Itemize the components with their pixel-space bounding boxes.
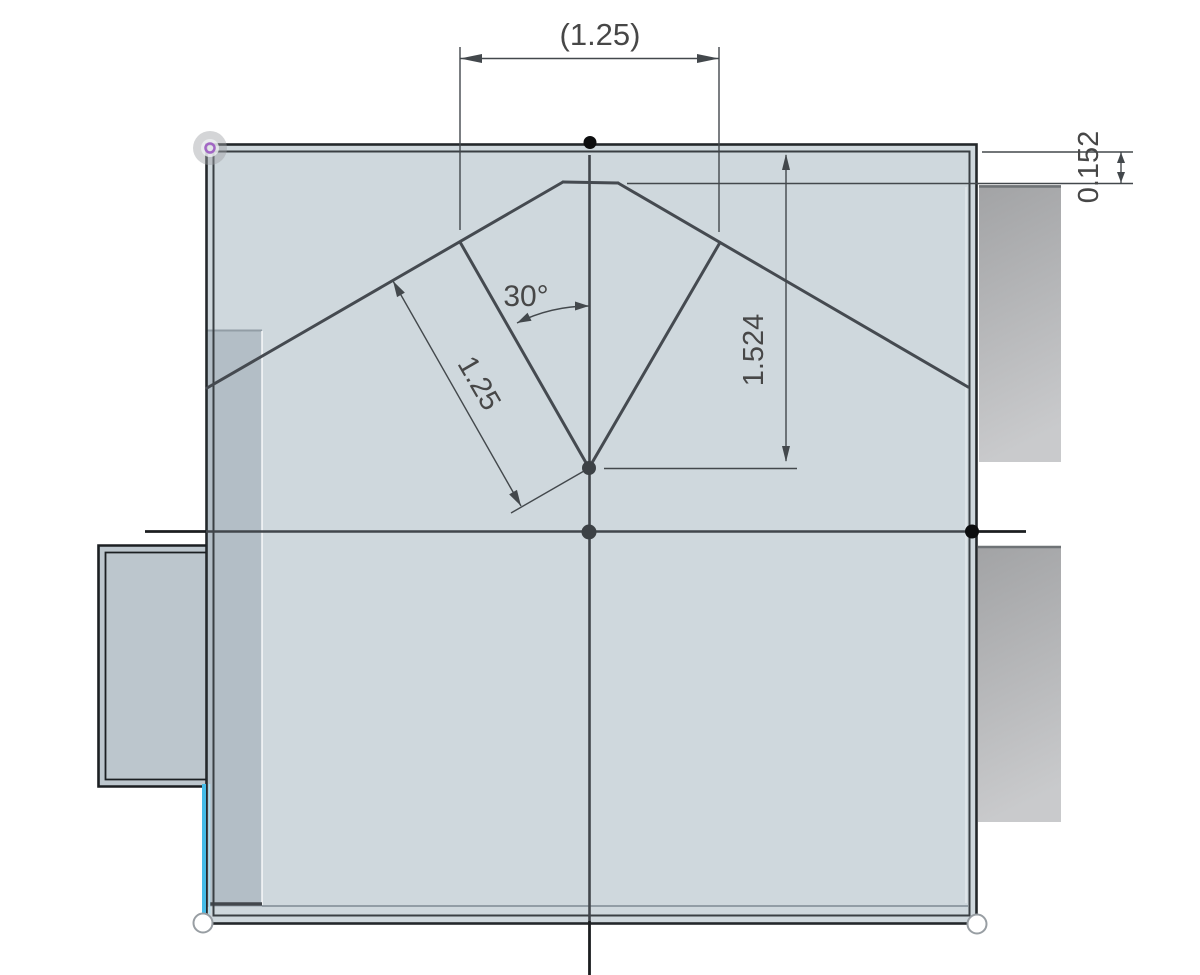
cad-sketch-viewport[interactable]: (1.25) 0.152 1.524 1.25 30° xyxy=(0,0,1200,975)
arrowhead xyxy=(697,54,719,63)
dim-depth-label[interactable]: 1.524 xyxy=(738,314,770,387)
sketch-line-flat-top[interactable] xyxy=(563,182,618,183)
right-edge-midpoint[interactable] xyxy=(965,525,979,539)
dim-top-width-label[interactable]: (1.25) xyxy=(560,17,641,52)
dim-angle-label[interactable]: 30° xyxy=(503,280,548,313)
arrowhead xyxy=(1117,153,1125,164)
v-vertex-point[interactable] xyxy=(582,461,596,475)
bottom-right-endpoint[interactable] xyxy=(968,915,987,934)
solid-face[interactable] xyxy=(979,185,1061,462)
center-point[interactable] xyxy=(582,525,597,540)
solid-body-upper-right[interactable] xyxy=(979,185,1061,462)
sketch-canvas[interactable]: (1.25) 0.152 1.524 1.25 30° xyxy=(0,0,1200,975)
dim-thickness-label[interactable]: 0.152 xyxy=(1073,131,1105,204)
left-protrusion-face[interactable] xyxy=(98,546,206,786)
solid-face[interactable] xyxy=(978,546,1061,822)
bottom-left-endpoint[interactable] xyxy=(194,914,213,933)
hover-halo-inner xyxy=(201,139,219,157)
solid-body-lower-right[interactable] xyxy=(978,546,1061,822)
arrowhead xyxy=(460,54,482,63)
highlighted-corner-point[interactable] xyxy=(193,131,227,165)
top-midpoint[interactable] xyxy=(584,136,597,149)
arrowhead xyxy=(1117,172,1125,183)
